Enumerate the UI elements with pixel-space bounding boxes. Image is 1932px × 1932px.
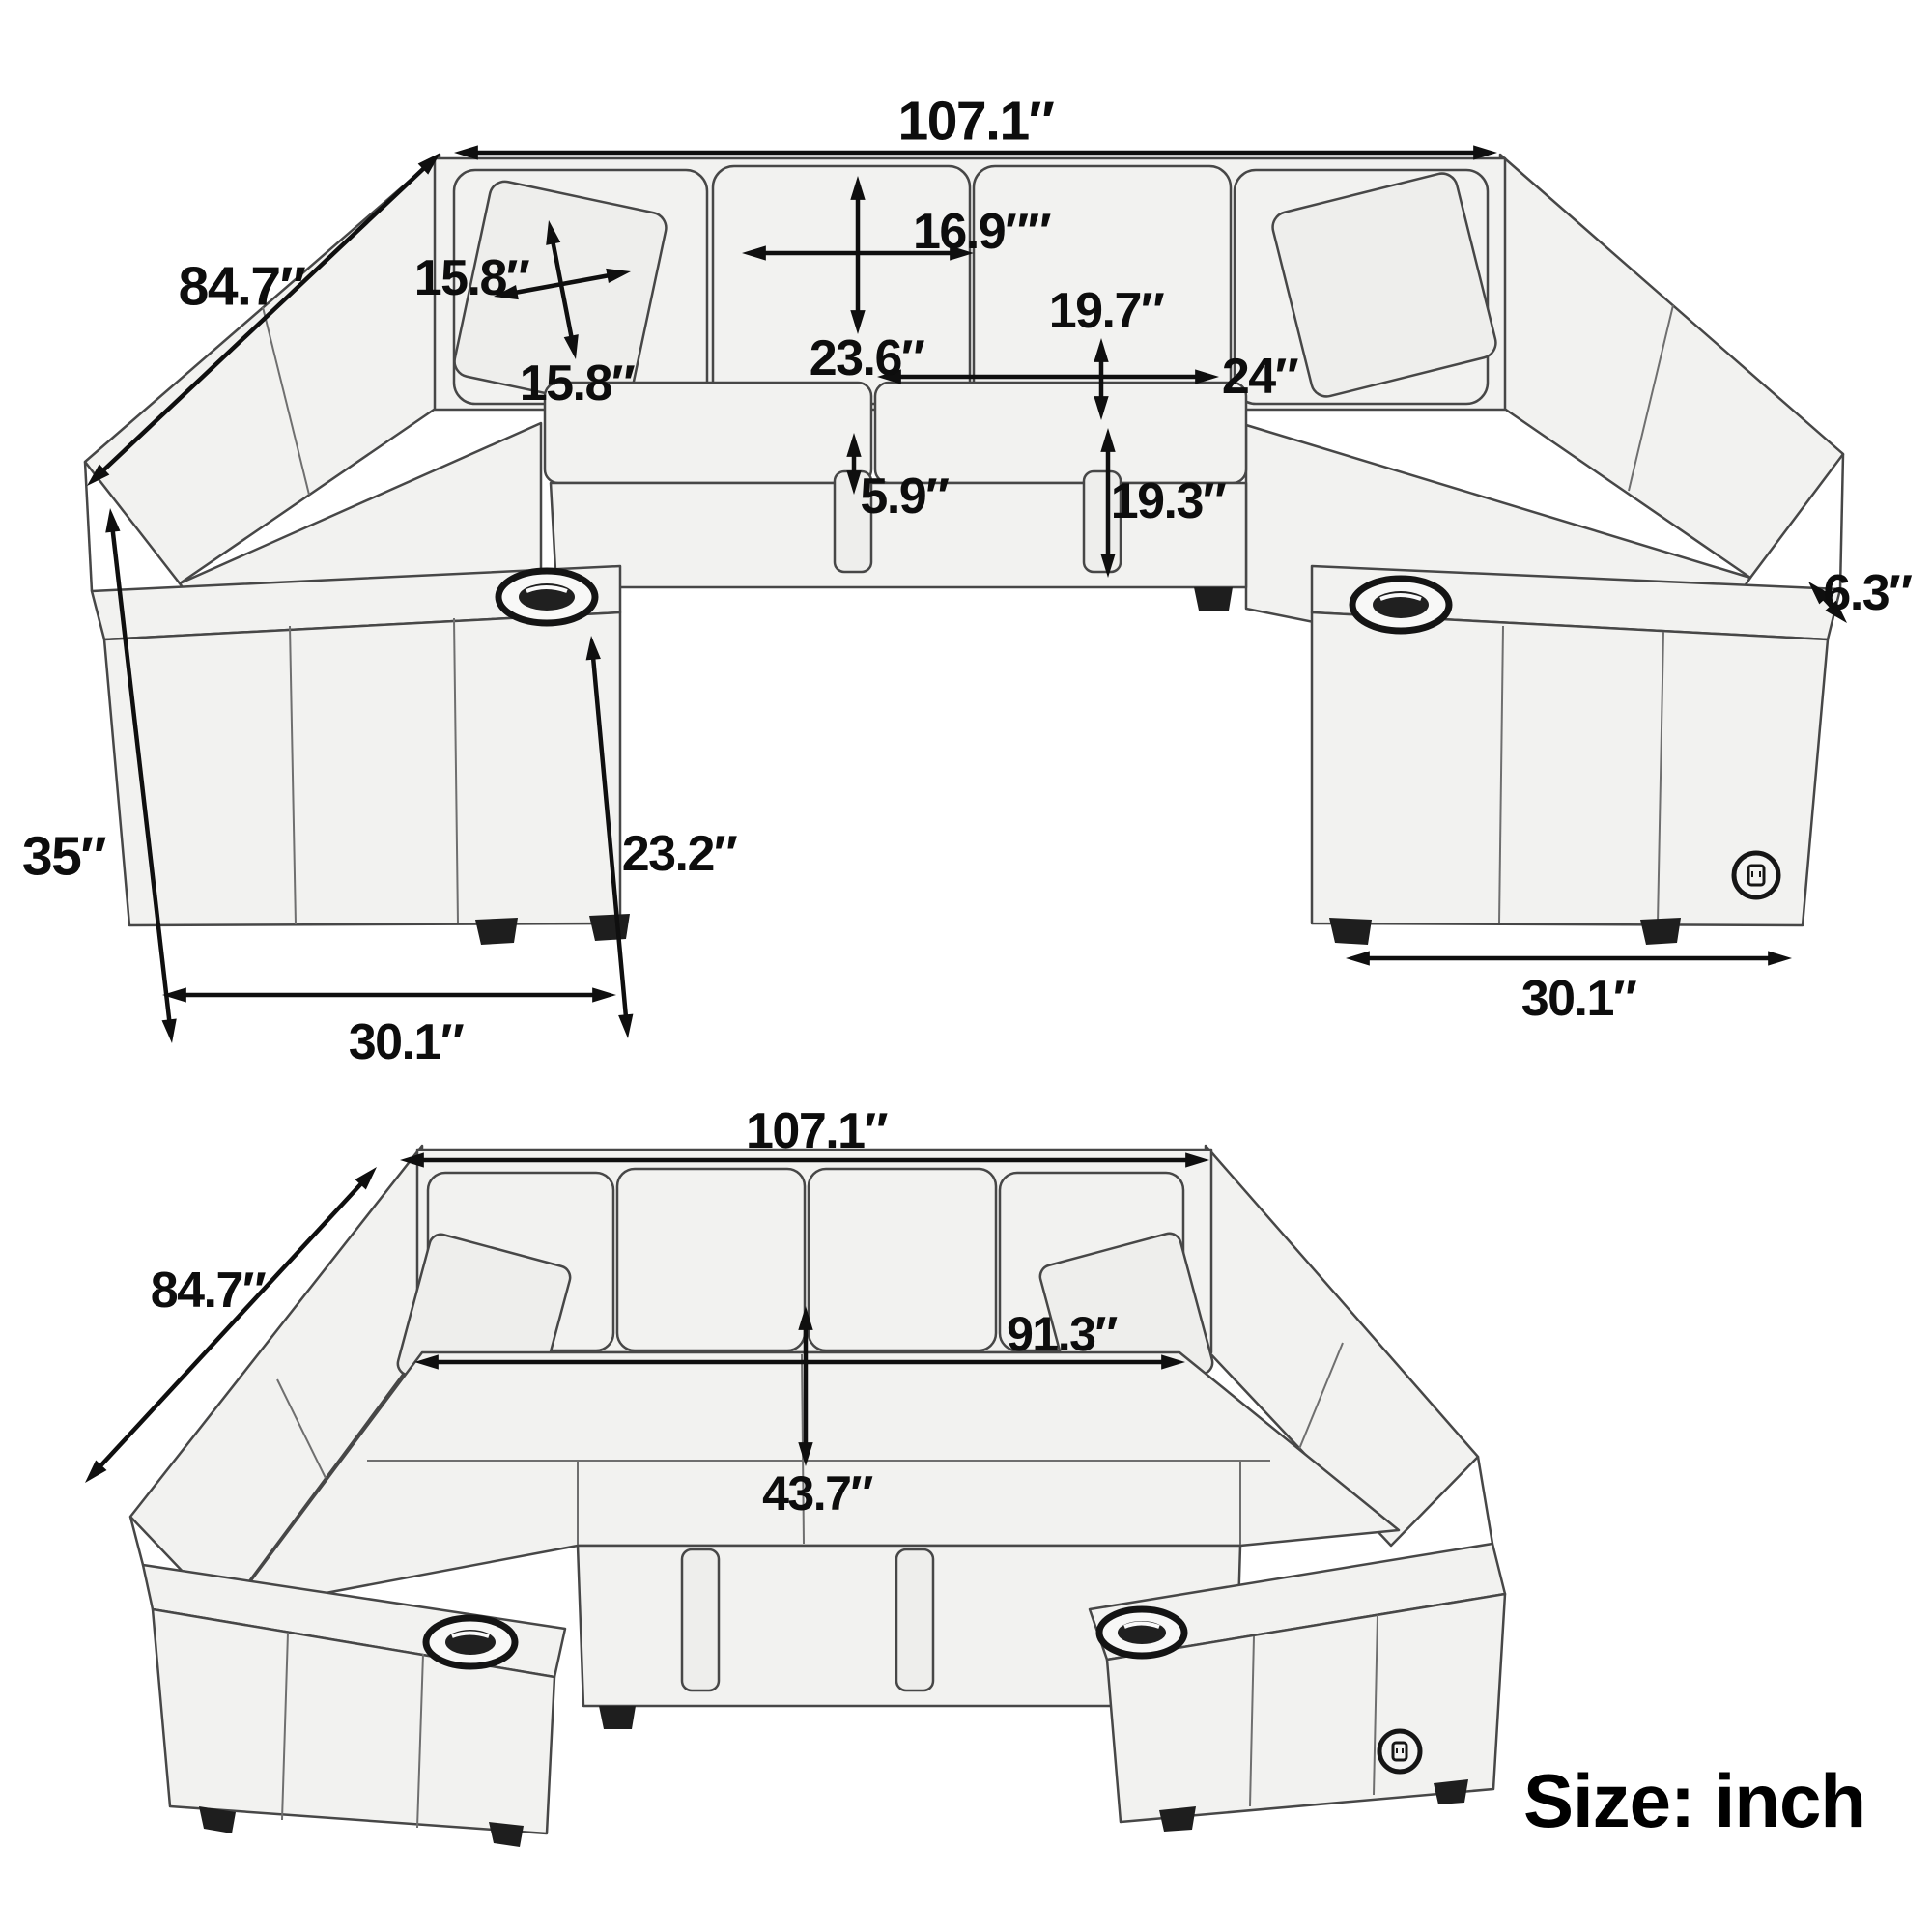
diagram-canvas: 107.1″ 84.7″ 15.8″ 15.8″ 16.9″″ 23.6″ 19… [0,0,1932,1932]
size-unit-note: Size: inch [1523,1763,1865,1838]
dim-arm-top-width-label: 6.3″ [1823,568,1911,618]
dim-back-cushion-height-label: 23.6″ [810,333,924,384]
dim-right-arm-depth-label: 30.1″ [1521,974,1636,1024]
dim-depth-label: 84.7″ [179,260,305,315]
dim-depth-bottom-label: 84.7″ [151,1265,266,1316]
dim-arm-inner-height-label: 23.2″ [622,829,737,879]
dim-left-arm-depth-label: 30.1″ [349,1017,464,1067]
dim-pillow-height-label: 15.8″ [520,358,635,409]
dim-pillow-width-label: 15.8″ [414,253,529,303]
dim-base-height-label: 19.3″ [1111,476,1226,526]
dim-back-cushion-width-label: 16.9″″ [913,207,1050,257]
dim-overall-height-label: 35″ [22,830,105,885]
dim-overall-width-label: 107.1″ [898,95,1054,150]
dim-seat-width-label: 24″ [1222,352,1297,402]
dim-overall-width-bottom-label: 107.1″ [746,1106,887,1156]
dim-seat-cushion-thickness-label: 5.9″ [860,471,948,522]
dim-seat-depth-label: 19.7″ [1049,286,1164,336]
dim-interior-width-label: 91.3″ [1007,1310,1117,1358]
dim-interior-depth-label: 43.7″ [762,1469,872,1518]
